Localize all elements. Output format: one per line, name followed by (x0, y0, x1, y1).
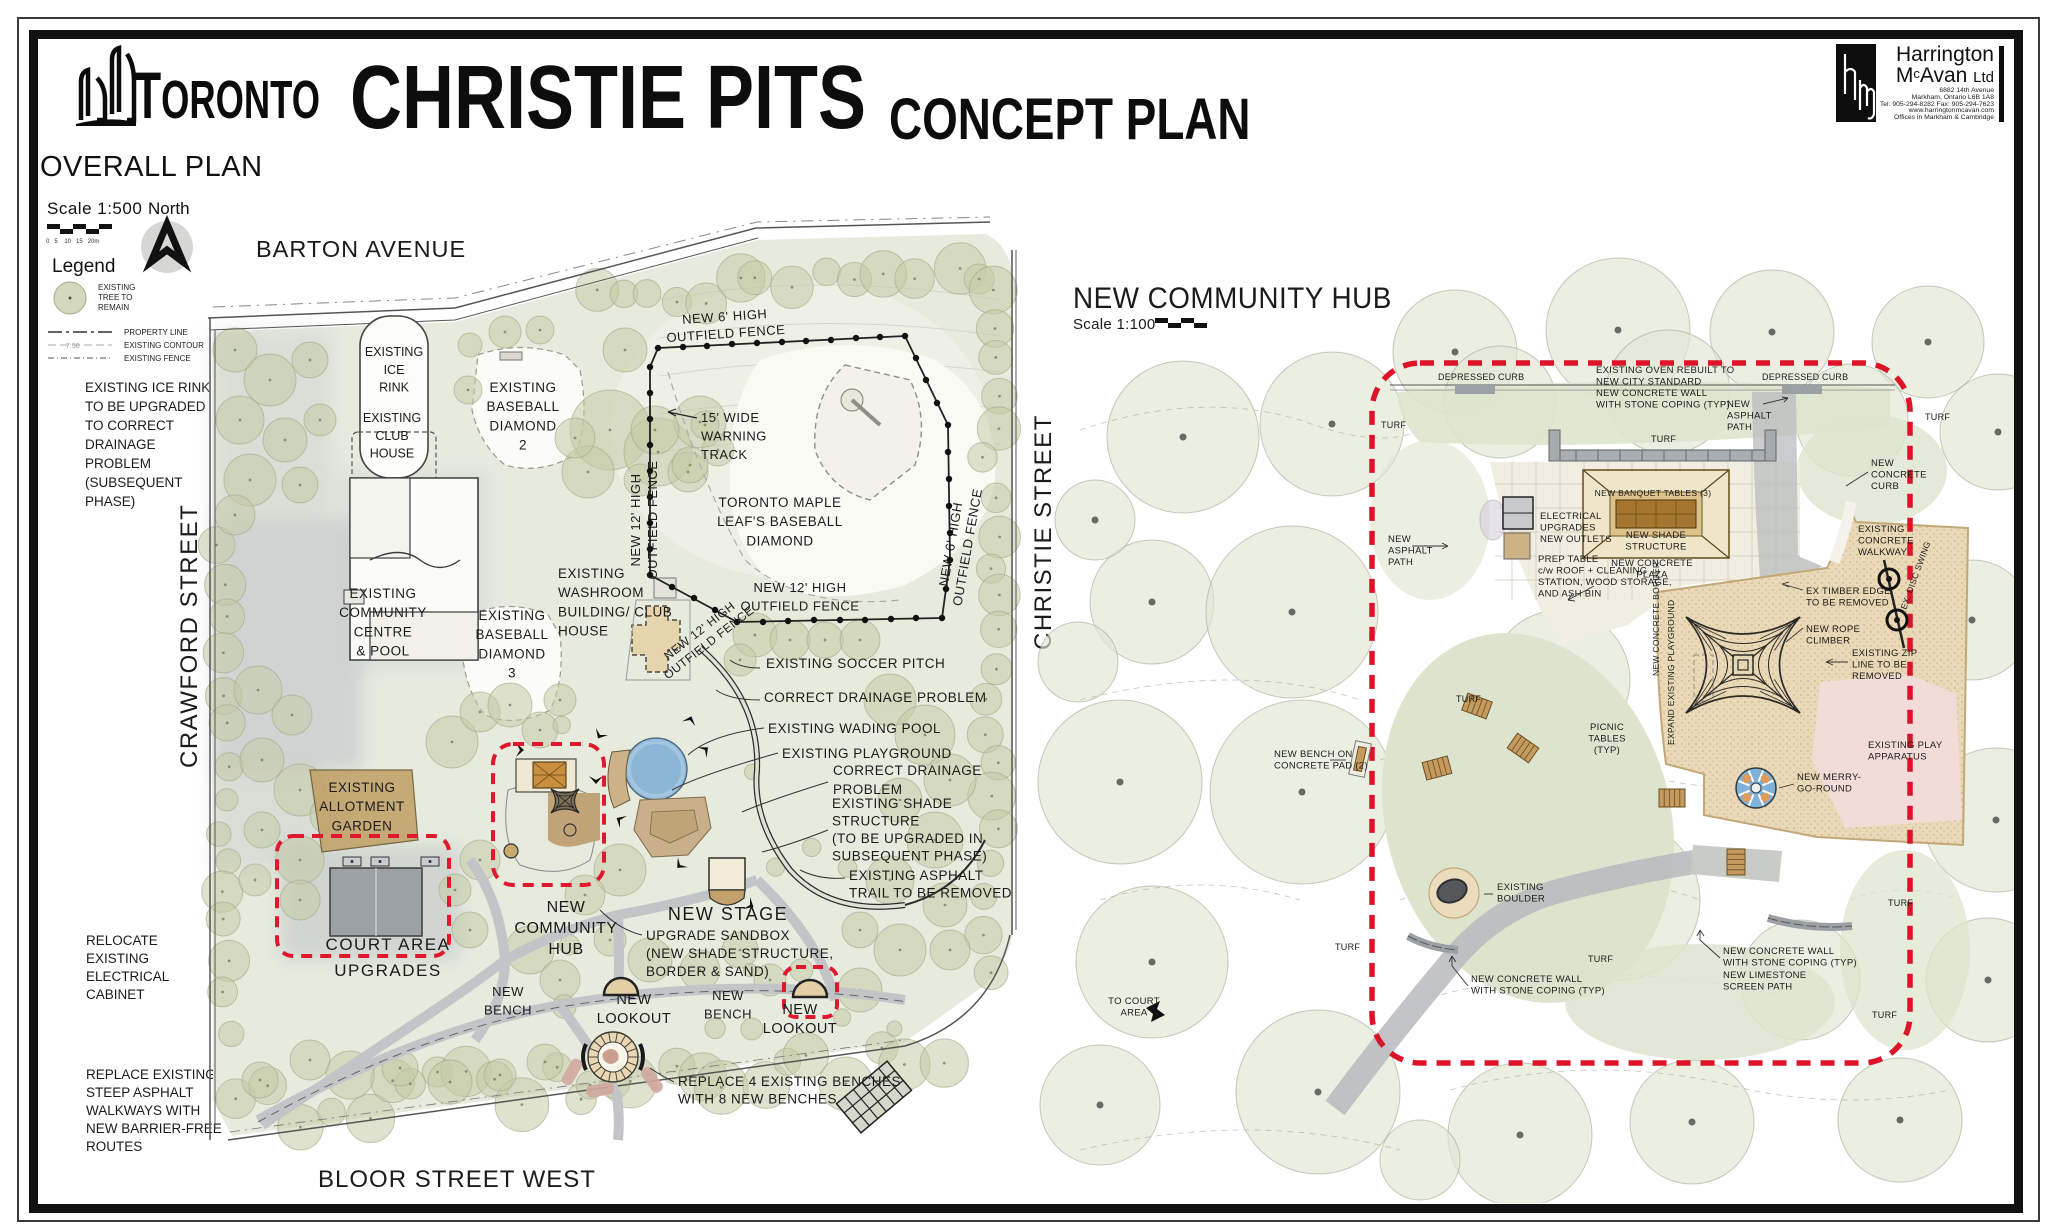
svg-text:TURF: TURF (1335, 942, 1360, 952)
svg-text:NEW CONCRETE BORDER: NEW CONCRETE BORDER (1651, 562, 1661, 676)
svg-text:TURF: TURF (1456, 694, 1481, 704)
svg-text:EXISTINGBOULDER: EXISTINGBOULDER (1497, 882, 1545, 905)
svg-text:DEPRESSED CURB: DEPRESSED CURB (1762, 372, 1848, 382)
svg-text:TURF: TURF (1872, 1010, 1897, 1020)
svg-text:Scale 1:100: Scale 1:100 (1073, 316, 1156, 333)
svg-text:NEW COMMUNITY HUB: NEW COMMUNITY HUB (1073, 282, 1392, 315)
svg-text:NEW MERRY-GO-ROUND: NEW MERRY-GO-ROUND (1797, 772, 1861, 795)
svg-text:TURF: TURF (1588, 954, 1613, 964)
svg-text:TURF: TURF (1925, 412, 1950, 422)
svg-text:EX TIMBER EDGETO BE REMOVED: EX TIMBER EDGETO BE REMOVED (1806, 586, 1891, 609)
svg-text:TURF: TURF (1381, 420, 1406, 430)
svg-text:TURF: TURF (1651, 434, 1676, 444)
svg-text:EXPAND EXISTING PLAYGROUND: EXPAND EXISTING PLAYGROUND (1666, 600, 1676, 745)
svg-text:NEW BANQUET TABLES (3): NEW BANQUET TABLES (3) (1595, 488, 1712, 498)
svg-text:PICNICTABLES(TYP): PICNICTABLES(TYP) (1588, 722, 1626, 756)
svg-text:DEPRESSED CURB: DEPRESSED CURB (1438, 372, 1524, 382)
svg-text:TURF: TURF (1888, 898, 1913, 908)
svg-text:NEW SHADESTRUCTURE: NEW SHADESTRUCTURE (1625, 530, 1686, 553)
